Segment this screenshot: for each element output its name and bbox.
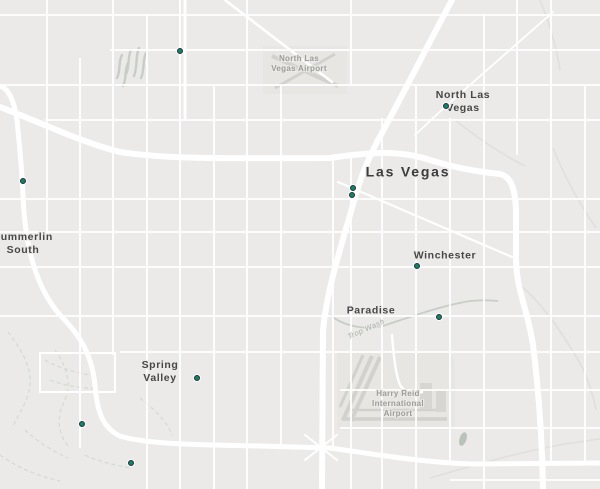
map-marker[interactable] (349, 192, 355, 198)
map[interactable]: North Las Vegas Airport North Las Vegas … (0, 0, 600, 489)
map-marker[interactable] (128, 460, 134, 466)
map-marker[interactable] (350, 185, 356, 191)
map-marker[interactable] (443, 103, 449, 109)
markers-layer (0, 0, 600, 489)
map-marker[interactable] (20, 178, 26, 184)
map-marker[interactable] (414, 263, 420, 269)
map-marker[interactable] (177, 48, 183, 54)
map-marker[interactable] (79, 421, 85, 427)
map-marker[interactable] (194, 375, 200, 381)
map-marker[interactable] (436, 314, 442, 320)
